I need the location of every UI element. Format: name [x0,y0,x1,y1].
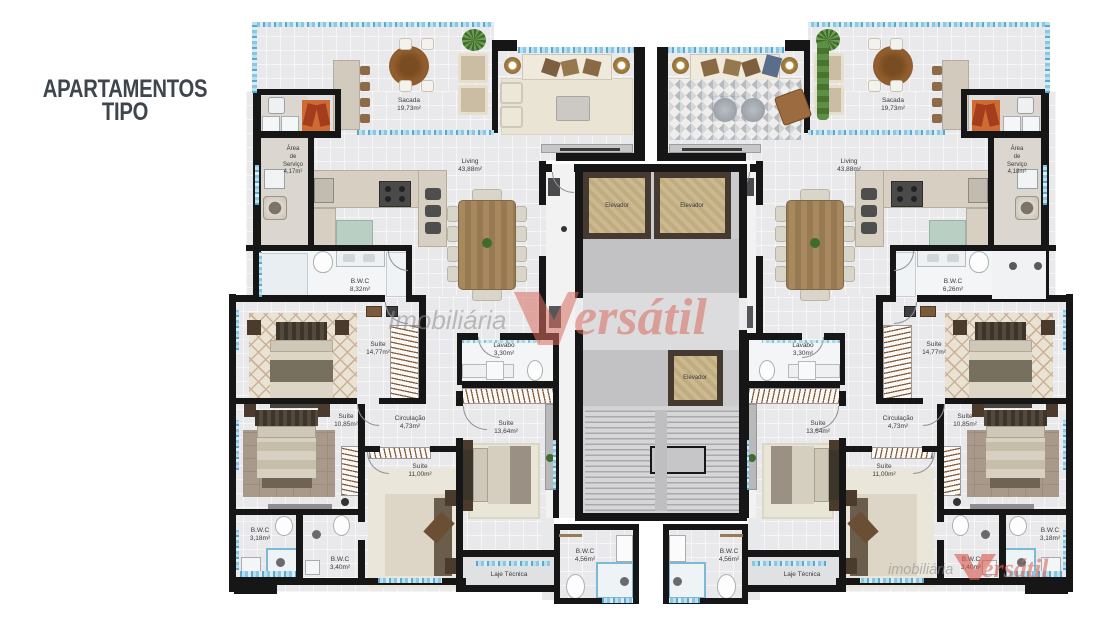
svg-text:imobiliária: imobiliária [888,562,953,578]
svg-text:ersátil: ersátil [982,554,1049,582]
svg-text:Imobiliária: Imobiliária [388,305,507,335]
svg-text:ersátil: ersátil [574,289,707,346]
